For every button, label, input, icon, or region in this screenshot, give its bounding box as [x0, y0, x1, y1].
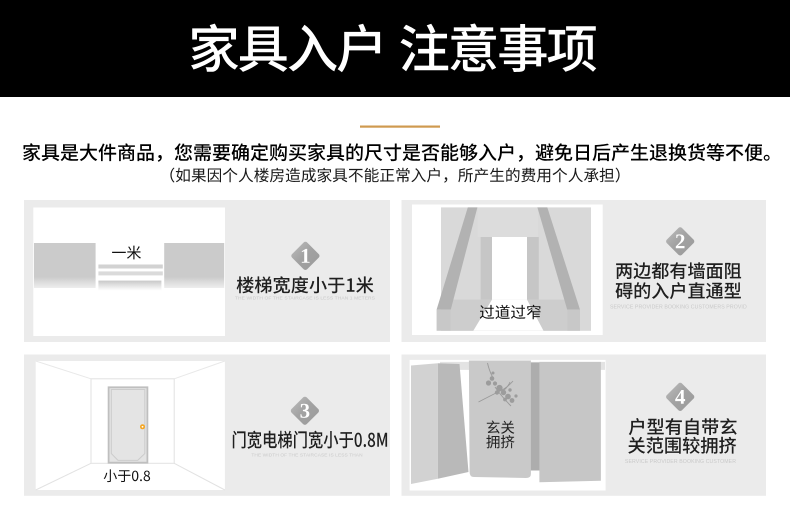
svg-text:THE WIDTH OF THE STAIRCASE IS: THE WIDTH OF THE STAIRCASE IS LESS THAN	[251, 452, 363, 458]
svg-text:SERVICE PROVIDER BOOKING CUSTO: SERVICE PROVIDER BOOKING CUSTOMER	[625, 459, 736, 465]
svg-text:THE WIDTH OF THE STAIRCASE IS: THE WIDTH OF THE STAIRCASE IS LESS THAN …	[235, 296, 376, 302]
svg-text:SERVICE PROVIDER BOOKING CUSTO: SERVICE PROVIDER BOOKING CUSTOMERS PROVI…	[610, 305, 747, 311]
